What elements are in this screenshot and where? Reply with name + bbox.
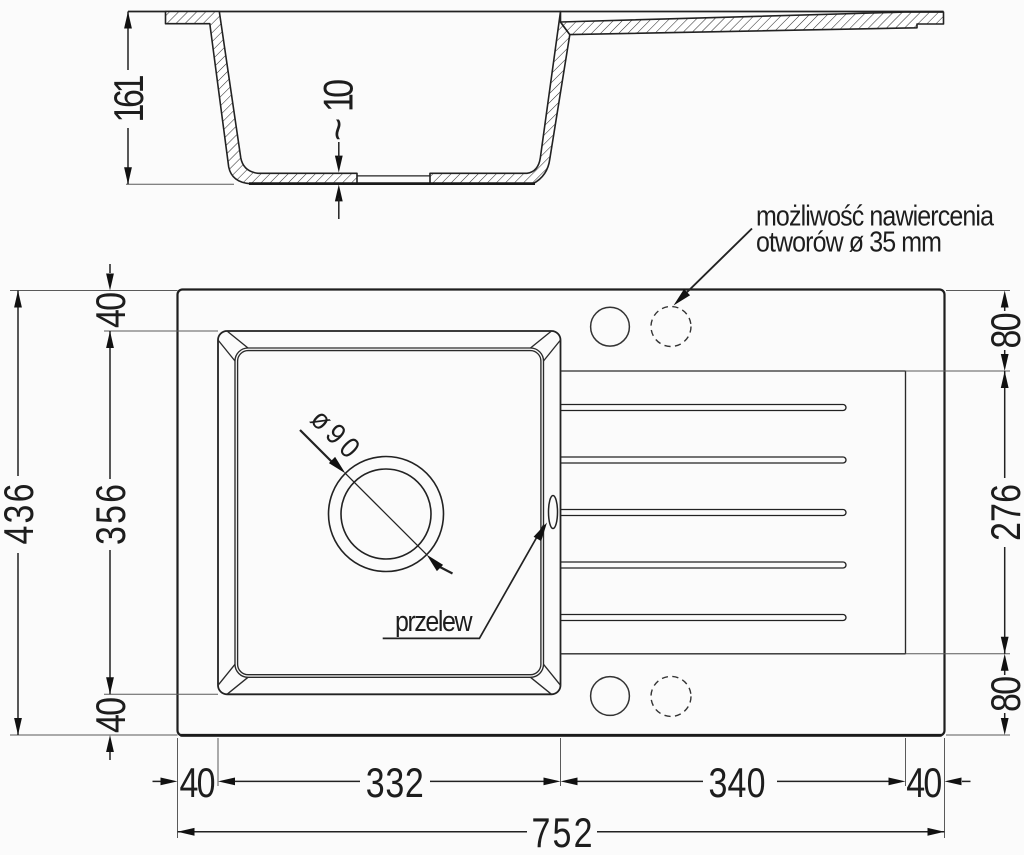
- svg-text:356: 356: [89, 484, 135, 545]
- svg-text:276: 276: [984, 484, 1024, 541]
- svg-text:40: 40: [180, 761, 216, 807]
- svg-text:40: 40: [89, 292, 135, 328]
- svg-text:10: 10: [316, 79, 362, 112]
- svg-text:~: ~: [317, 118, 361, 141]
- svg-text:40: 40: [906, 761, 942, 807]
- svg-text:80: 80: [984, 313, 1024, 349]
- svg-text:80: 80: [984, 676, 1024, 712]
- svg-text:752: 752: [532, 811, 593, 855]
- svg-text:161: 161: [107, 75, 153, 123]
- svg-text:436: 436: [0, 484, 43, 545]
- svg-text:otworów ø 35 mm: otworów ø 35 mm: [756, 225, 942, 258]
- svg-text:332: 332: [366, 761, 424, 807]
- svg-text:340: 340: [709, 761, 766, 807]
- svg-text:przelew: przelew: [395, 604, 473, 637]
- svg-text:40: 40: [89, 697, 135, 733]
